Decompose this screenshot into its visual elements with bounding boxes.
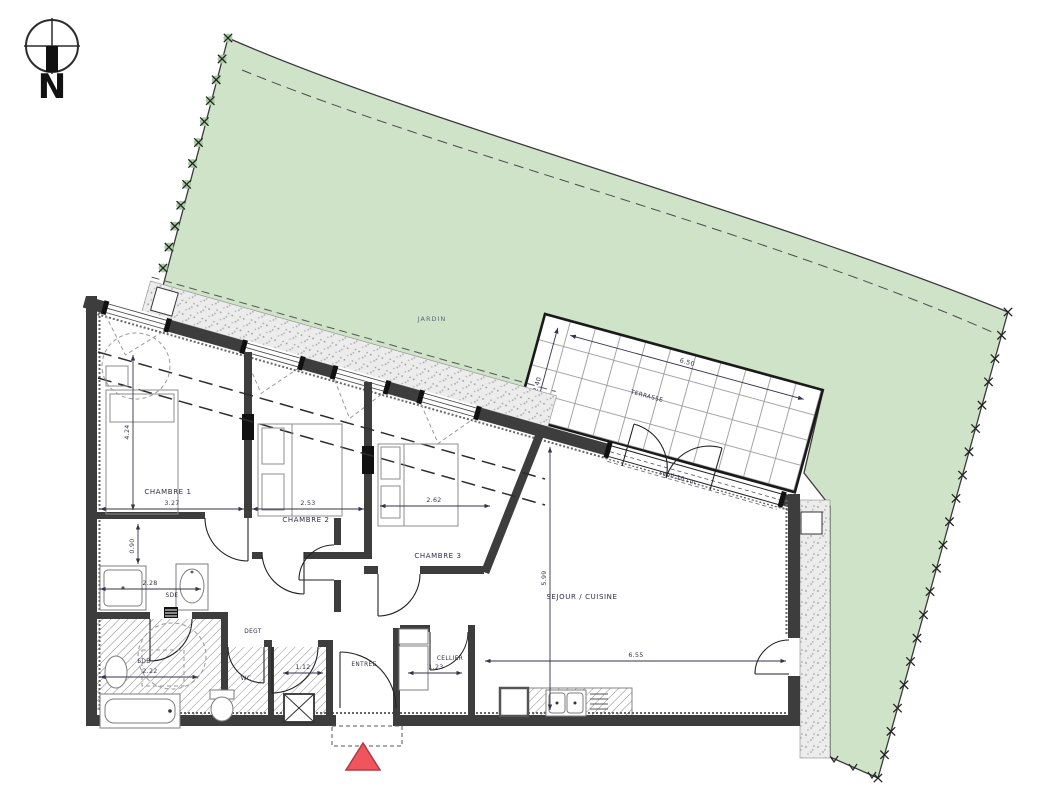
wall-sde-sdb-left <box>97 612 150 619</box>
label-sdb: SDB <box>137 659 150 665</box>
label-chambre1: CHAMBRE 1 <box>144 488 191 496</box>
wall-ch3-bottom-left <box>364 566 378 574</box>
right-wall-lower <box>788 676 800 726</box>
floor-drain <box>164 607 178 618</box>
label-cellier: CELLIER <box>437 656 463 662</box>
bottom-wall <box>86 715 800 726</box>
label-sejour: SEJOUR / CUISINE <box>546 593 617 601</box>
wall-ch2-bottom-left <box>252 552 262 559</box>
wall-ch2-bottom-right <box>304 552 368 559</box>
label-wc: WC <box>241 676 252 682</box>
duct-box <box>284 694 314 722</box>
north-label: N <box>38 67 66 107</box>
dim-sdb: 2.22 <box>142 668 157 675</box>
left-wall <box>86 296 97 726</box>
entrance-porch <box>332 726 402 746</box>
label-chambre3: CHAMBRE 3 <box>414 552 461 560</box>
label-chambre2: CHAMBRE 2 <box>282 516 329 524</box>
bathtub <box>100 694 180 728</box>
column-ch1 <box>242 414 254 440</box>
dim-chambre3: 2.62 <box>426 497 441 504</box>
wall-ch1-bottom <box>97 512 205 519</box>
label-degt: DEGT <box>244 629 262 635</box>
wall-wc-closet-pier <box>264 640 272 647</box>
right-wall-upper <box>788 494 800 638</box>
dim-sde-door: 0.90 <box>129 538 136 553</box>
wall-wc-right <box>268 647 274 715</box>
entrance <box>332 726 402 770</box>
wall-entree-left <box>326 640 333 726</box>
wall-sde-right-lower <box>334 580 341 612</box>
dim-wc: 1.12 <box>295 664 310 671</box>
cellier-cupboard <box>399 629 428 690</box>
dim-sejour-width: 6.55 <box>628 652 643 659</box>
floor-plan-page: JARDIN 6.50 2.40 TERRASSE <box>0 0 1045 800</box>
column-ch2 <box>362 446 374 474</box>
dim-sde: 2.28 <box>142 580 157 587</box>
dim-chambre2: 2.53 <box>300 500 315 507</box>
wall-wc-corner <box>221 640 228 647</box>
entrance-opening <box>336 715 398 726</box>
compass: N <box>24 18 80 107</box>
label-entree: ENTREE <box>351 662 376 668</box>
washbasin-sde <box>176 564 208 610</box>
entrance-marker-triangle <box>346 743 380 770</box>
shower <box>100 566 146 610</box>
toilet <box>210 690 234 721</box>
path-strip-right <box>800 500 830 758</box>
garden-label: JARDIN <box>417 315 447 323</box>
wall-sde-right-upper <box>334 518 341 545</box>
bed-chambre3 <box>378 444 458 526</box>
dim-chambre1-depth: 4.24 <box>124 424 131 439</box>
dim-chambre1: 3.27 <box>164 500 179 507</box>
washbasin-sdb <box>105 656 127 688</box>
label-sde: SDE <box>165 593 178 599</box>
wall-ch3-bottom-right <box>420 566 484 574</box>
floor-plan-drawing: JARDIN 6.50 2.40 TERRASSE <box>0 0 1045 800</box>
wall-sde-sdb-right <box>192 612 221 619</box>
dim-sejour-depth: 5.99 <box>541 570 548 585</box>
dim-cellier: 1.23 <box>428 664 443 671</box>
path-box-right <box>801 512 822 534</box>
wall-cellier-right <box>468 625 475 715</box>
